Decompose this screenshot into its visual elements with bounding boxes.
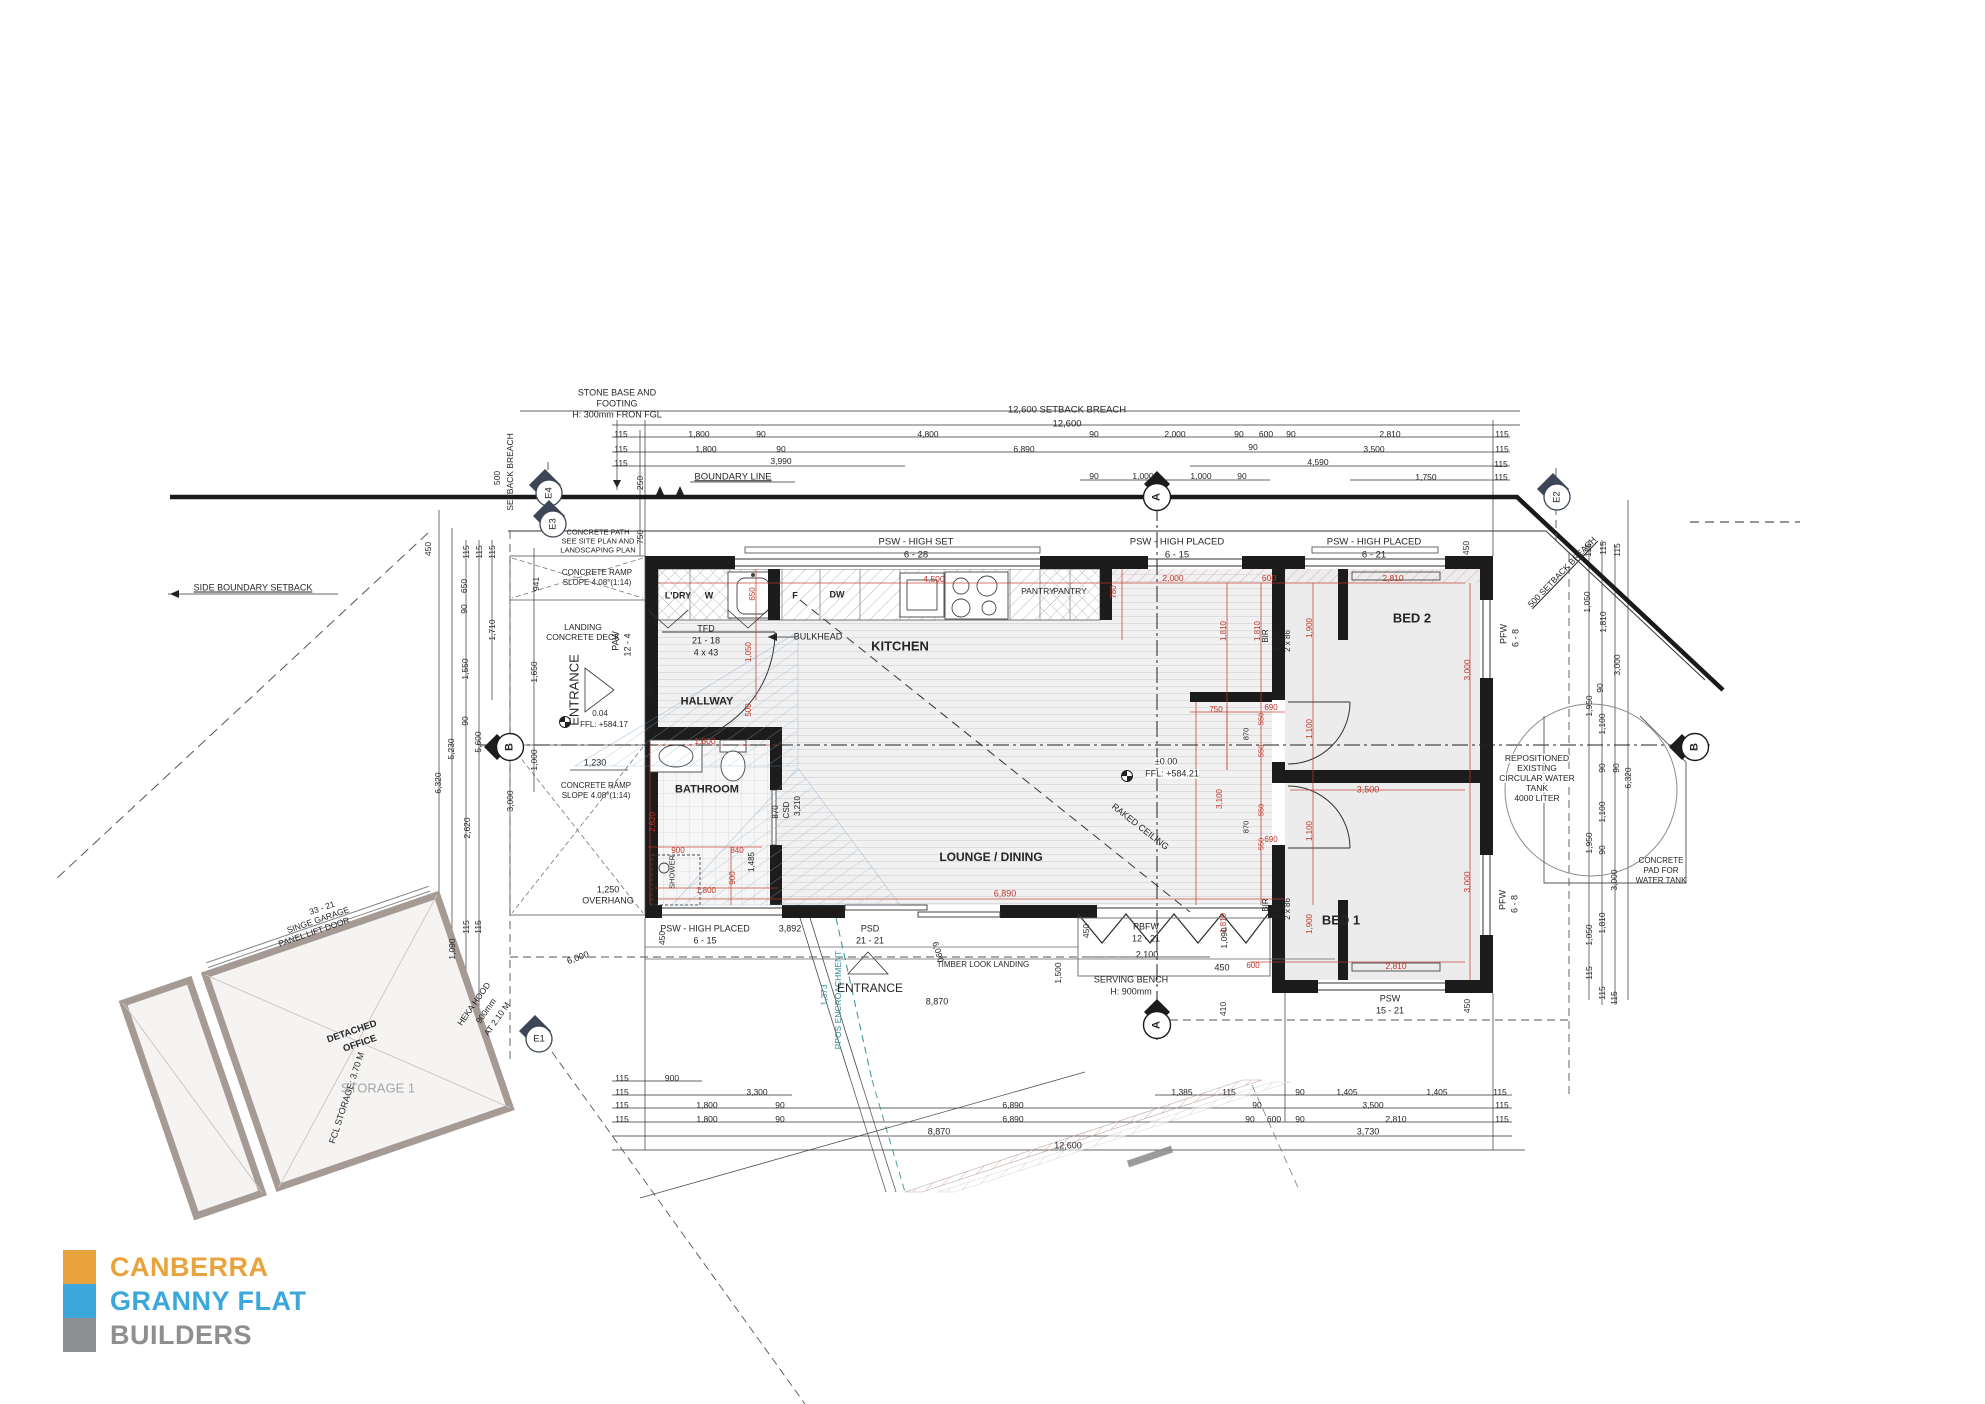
dim-label: 1,485: [748, 852, 756, 872]
window-label: PSW - HIGH PLACED: [1327, 537, 1422, 547]
company-logo: CANBERRA GRANNY FLAT BUILDERS: [63, 1250, 307, 1352]
dim-label: 690: [1264, 704, 1277, 712]
dim-label: 6 - 28: [904, 550, 928, 560]
dim-label: 3,100: [1216, 789, 1224, 809]
dim-label: 3,500: [1357, 786, 1380, 795]
room-label-bed-2: BED 2: [1393, 612, 1431, 625]
dim-label: 870: [1242, 728, 1250, 741]
dim-label: 1,950: [1585, 832, 1594, 853]
dim-label: 2,810: [1385, 962, 1406, 971]
elevation-marker-e3: E3: [548, 518, 558, 530]
dim-label: 5,600: [474, 731, 483, 752]
elevation-marker-e1: E1: [533, 1034, 545, 1044]
dim-label: 550: [1257, 804, 1265, 817]
dim-label: 840: [730, 847, 743, 855]
dim-label: TIMBER LOOK LANDING: [937, 961, 1029, 969]
section-marker-a: A: [1152, 1021, 1163, 1029]
dim-label: 941: [532, 577, 541, 591]
dim-label: 8,870: [926, 998, 949, 1007]
dim-label: 6,000: [566, 950, 590, 966]
dim-label: ±0.00: [1155, 758, 1177, 767]
dim-label: 1,000: [530, 749, 539, 770]
elevation-marker-e4: E4: [544, 487, 554, 499]
dim-label: 2,000: [1162, 574, 1183, 583]
dim-label: 12,600: [1052, 419, 1081, 429]
dim-label: 6,890: [1002, 1101, 1023, 1110]
dim-label: 115: [488, 545, 497, 559]
dim-label: 450: [1463, 999, 1472, 1013]
dim-label: 90: [1248, 443, 1257, 452]
dim-label: 12 - 4: [624, 633, 633, 656]
dim-label: 4,590: [1307, 458, 1328, 467]
dim-label: 12 - 21: [1132, 935, 1160, 944]
dim-label: 3,000: [1463, 871, 1472, 892]
dim-label: SEE SITE PLAN AND: [562, 537, 635, 545]
entrance-label: ENTRANCE: [837, 982, 903, 994]
dim-label: 1,710: [488, 619, 497, 640]
dim-label: 2,000: [1164, 430, 1185, 439]
dim-label: PSD: [861, 925, 880, 934]
dim-label: 1,050: [1585, 924, 1594, 945]
room-label-lounge-dining: LOUNGE / DINING: [939, 851, 1042, 863]
dim-label: 115: [1585, 966, 1594, 980]
dim-label: 115: [1495, 1115, 1509, 1124]
dim-label: BIR: [1262, 629, 1270, 642]
plan-annotations: STONE BASE ANDFOOTINGH: 300mm FRON FGL12…: [0, 0, 1985, 1404]
dim-label: 870: [1242, 821, 1250, 834]
dim-label: 90: [775, 1101, 784, 1110]
dim-label: CONCRETE RAMP: [562, 569, 632, 577]
dim-label: 3,000: [1463, 659, 1472, 680]
dim-label: EXISTING: [1517, 764, 1557, 773]
window-label: PSW - HIGH PLACED: [1130, 537, 1225, 547]
room-label-bathroom: BATHROOM: [675, 785, 739, 796]
boundary-line-label: BOUNDARY LINE: [694, 472, 771, 482]
dim-label: 90: [776, 445, 785, 454]
dim-label: 3,730: [1357, 1128, 1380, 1137]
dim-label: FCL STORAGE: 3.70 M: [328, 1051, 366, 1145]
dim-label: 90: [1237, 472, 1246, 481]
dim-label: 1,900: [1306, 618, 1314, 638]
dim-label: 1,100: [1598, 713, 1607, 734]
dim-label: TFD: [697, 625, 715, 634]
dim-label: 115: [475, 545, 484, 559]
dim-label: 450: [424, 542, 433, 556]
dim-label: 90: [1252, 1101, 1261, 1110]
dim-label: 1,000: [1190, 472, 1211, 481]
dim-label: 1,050: [1583, 591, 1592, 612]
dim-label: 115: [1598, 986, 1607, 1000]
dim-label: 2,810: [1382, 574, 1403, 583]
dim-label: 1,230: [584, 759, 607, 768]
dim-label: 3,000: [1613, 654, 1622, 675]
dim-label: CONCRETE PATH: [566, 528, 629, 536]
dim-label: 6 - 15: [693, 937, 716, 946]
elevation-marker-e2: E2: [1552, 491, 1562, 503]
dim-label: 6,890: [1013, 445, 1034, 454]
dim-label: 1,000: [1132, 472, 1153, 481]
dim-label: 900: [665, 1074, 679, 1083]
dim-label: 6,090: [931, 941, 945, 964]
dim-label: 3,990: [770, 457, 791, 466]
dim-label: 115: [1493, 1088, 1507, 1097]
dim-label: 550: [1257, 713, 1265, 726]
dim-label: 6 - 21: [1362, 550, 1386, 560]
dim-label: 115: [615, 1074, 629, 1083]
dim-label: 90: [1598, 763, 1607, 772]
dim-label: 90: [461, 716, 470, 725]
dim-label: 1,100: [1306, 821, 1314, 841]
entrance-label: ENTRANCE: [568, 654, 581, 726]
dim-label: 115: [1495, 445, 1509, 454]
dim-label: OVERHANG: [582, 897, 634, 906]
dim-label: 6 - 8: [1512, 629, 1521, 647]
dim-label: PANTRY: [1053, 587, 1087, 596]
dim-label: 0.04: [592, 710, 608, 718]
dim-label: 1,810: [1220, 621, 1228, 641]
dim-label: 90: [1612, 763, 1621, 772]
dim-label: 90: [1286, 430, 1295, 439]
dim-label: F: [792, 592, 798, 601]
logo-line-3: BUILDERS: [110, 1318, 307, 1352]
dim-label: 115: [615, 1101, 629, 1110]
window-label: PSW - HIGH PLACED: [660, 925, 750, 934]
dim-label: 8,870: [928, 1128, 951, 1137]
dim-label: 4000 LITER: [1514, 794, 1559, 803]
dim-label: 15 - 21: [1376, 1007, 1404, 1016]
dim-label: 2 x 86: [1284, 630, 1292, 652]
dim-label: 5,230: [447, 738, 456, 759]
dim-label: 1,373: [820, 984, 829, 1005]
dim-label: 1,750: [1415, 473, 1436, 482]
dim-label: 115: [1495, 430, 1509, 439]
dim-label: FFL: +584.17: [580, 721, 628, 729]
dim-label: 115: [614, 459, 628, 468]
dim-label: 1,550: [461, 658, 470, 679]
dim-label: CONCRETE RAMP: [561, 782, 631, 790]
dim-label: 1,720: [1273, 631, 1281, 651]
dim-label: LANDSCAPING PLAN: [560, 546, 635, 554]
section-marker-b: B: [1690, 743, 1701, 751]
dim-label: 6,320: [1624, 767, 1633, 788]
dim-label: 6,890: [994, 890, 1017, 899]
dim-label: 900: [729, 871, 737, 884]
dim-label: FOOTING: [597, 400, 638, 409]
dim-label: 90: [1295, 1088, 1304, 1097]
dim-label: FFL: +584.21: [1145, 770, 1199, 779]
dim-label: 6,320: [434, 772, 443, 793]
logo-line-1: CANBERRA: [110, 1250, 307, 1284]
dim-label: PAD FOR: [1644, 867, 1679, 875]
logo-square-gray: [63, 1318, 96, 1352]
dim-label: 870: [772, 805, 780, 818]
floor-plan-canvas: STONE BASE ANDFOOTINGH: 300mm FRON FGL12…: [0, 0, 1985, 1404]
dim-label: 1,100: [1598, 801, 1607, 822]
dim-label: 1,720: [1273, 899, 1281, 919]
dim-label: 1,800: [694, 737, 715, 746]
dim-label: 1,800: [695, 445, 716, 454]
dim-label: 12,600: [1054, 1142, 1082, 1151]
dim-label: PFW: [1500, 624, 1509, 644]
dim-label: 3,300: [746, 1088, 767, 1097]
dim-label: 1,810: [1599, 611, 1608, 632]
dim-label: 90: [775, 1115, 784, 1124]
dim-label: 115: [614, 445, 628, 454]
dim-label: 1,405: [1426, 1088, 1447, 1097]
dim-label: 115: [462, 920, 471, 934]
dim-label: PFW: [1499, 890, 1508, 910]
dim-label: 90: [1234, 430, 1243, 439]
logo-line-2: GRANNY FLAT: [110, 1284, 307, 1318]
dim-label: 1,800: [696, 1101, 717, 1110]
dim-label: PAW: [612, 631, 621, 651]
dim-label: 600: [1259, 430, 1273, 439]
dim-label: 750: [1209, 706, 1222, 714]
dim-label: 1,800: [696, 1115, 717, 1124]
window-label: PSW - HIGH SET: [879, 537, 954, 547]
dim-label: PSW: [1380, 995, 1401, 1004]
dim-label: CSD: [783, 802, 791, 819]
dim-label: 2,620: [649, 812, 657, 832]
dim-label: 6 - 8: [1511, 895, 1520, 913]
dim-label: 1,800: [696, 887, 716, 895]
dim-label: 115: [1495, 1101, 1509, 1110]
logo-square-orange: [63, 1250, 96, 1284]
dim-label: 115: [462, 545, 471, 559]
dim-label: 1,050: [745, 642, 753, 662]
dim-label: 6,890: [1002, 1115, 1023, 1124]
dim-label: 3,210: [794, 796, 802, 816]
dim-label: 90: [1245, 1115, 1254, 1124]
dim-label: 115: [1222, 1088, 1236, 1097]
dim-label: 2,100: [1136, 951, 1159, 960]
dim-label: 1,090: [448, 938, 457, 959]
dim-label: PPOS ENCROACHMENT: [834, 951, 843, 1050]
dim-label: 500: [745, 703, 753, 716]
dim-label: 90: [1295, 1115, 1304, 1124]
dim-label: SERVING BENCH: [1094, 976, 1168, 985]
dim-label: TANK: [1526, 784, 1548, 793]
dim-label: 115: [474, 920, 483, 934]
dim-label: 90: [756, 430, 765, 439]
dim-label: BIR: [1262, 898, 1270, 911]
section-marker-a: A: [1152, 493, 1163, 501]
dim-label: 750: [636, 530, 645, 544]
dim-label: 90: [1089, 472, 1098, 481]
dim-label: 2,810: [1379, 430, 1400, 439]
dim-label: 650: [460, 579, 469, 593]
room-label-bed-1: BED 1: [1322, 914, 1360, 927]
dim-label: DW: [830, 591, 845, 600]
section-marker-b: B: [505, 743, 516, 751]
dim-label: 600: [1262, 574, 1276, 583]
dim-label: 1,100: [1306, 719, 1314, 739]
dim-label: 115: [1494, 460, 1508, 469]
dim-label: 1,405: [1336, 1088, 1357, 1097]
dim-label: 1,500: [1054, 962, 1063, 983]
dim-label: LANDING: [564, 623, 602, 632]
dim-label: 12,600 SETBACK BREACH: [1008, 405, 1126, 415]
dim-label: STORAGE 1: [341, 1082, 415, 1095]
dim-label: CONCRETE DECK: [546, 633, 620, 642]
dim-label: 21 - 21: [856, 937, 884, 946]
dim-label: 90: [1596, 683, 1605, 692]
dim-label: 115: [615, 1115, 629, 1124]
dim-label: 450: [1462, 541, 1471, 555]
dim-label: 780: [1110, 585, 1118, 598]
dim-label: 3,500: [1363, 445, 1384, 454]
dim-label: SHOWER: [668, 855, 676, 889]
dim-label: 450: [1214, 964, 1229, 973]
dim-label: RAKED CEILING: [1110, 802, 1170, 852]
dim-label: 3,000: [1610, 869, 1619, 890]
dim-label: H: 300mm FRON FGL: [572, 411, 662, 420]
dim-label: W: [705, 592, 714, 601]
dim-label: 1,800: [688, 430, 709, 439]
dim-label: 90: [1598, 845, 1607, 854]
dim-label: 115: [614, 430, 628, 439]
dim-label: CONCRETE: [1639, 857, 1684, 865]
dim-label: 115: [1613, 543, 1622, 557]
dim-label: SETBACK BREACH: [506, 433, 515, 510]
dim-label: SLOPE 4.08°(1:14): [562, 792, 631, 800]
dim-label: PBFW: [1133, 923, 1159, 932]
dim-label: 115: [1584, 543, 1593, 557]
dim-label: PANTRY: [1021, 587, 1055, 596]
dim-label: 1,385: [1171, 1088, 1192, 1097]
dim-label: 2,620: [463, 817, 472, 838]
dim-label: 115: [1599, 541, 1608, 555]
dim-label: 90: [460, 604, 469, 613]
dim-label: 900: [671, 847, 684, 855]
dim-label: 1,950: [1585, 695, 1594, 716]
dim-label: 3,000: [506, 790, 515, 811]
dim-label: 21 - 18: [692, 637, 720, 646]
logo-squares-icon: [63, 1250, 96, 1352]
dim-label: 6 - 15: [1165, 550, 1189, 560]
dim-label: 450: [1082, 924, 1091, 938]
dim-label: 650: [749, 587, 757, 600]
dim-label: 690: [1264, 836, 1277, 844]
dim-label: 90: [1089, 430, 1098, 439]
dim-label: 3,500: [1362, 1101, 1383, 1110]
dim-label: 1,650: [530, 661, 539, 682]
dim-label: CIRCULAR WATER: [1499, 774, 1575, 783]
dim-label: 2 x 86: [1284, 898, 1292, 920]
dim-label: 1,090: [1220, 927, 1229, 948]
dim-label: 250: [636, 476, 645, 490]
dim-label: 4,500: [923, 575, 944, 584]
dim-label: 600: [1246, 962, 1259, 970]
dim-label: 920: [646, 683, 655, 697]
dim-label: 1,250: [597, 886, 620, 895]
dim-label: 1,900: [1306, 914, 1314, 934]
dim-label: 115: [1610, 991, 1619, 1005]
room-label-laundry: L'DRY: [665, 592, 691, 601]
dim-label: WATER TANK: [1636, 877, 1687, 885]
logo-square-blue: [63, 1284, 96, 1318]
dim-label: 115: [1494, 473, 1508, 482]
dim-label: BULKHEAD: [794, 633, 843, 642]
dim-label: SLOPE 4.08°(1:14): [563, 579, 632, 587]
room-label-hallway: HALLWAY: [681, 697, 734, 708]
dim-label: 450: [658, 931, 667, 945]
dim-label: H: 900mm: [1110, 988, 1152, 997]
dim-label: 1,810: [1598, 912, 1607, 933]
dim-label: 3,892: [779, 925, 802, 934]
dim-label: 4 x 43: [694, 649, 719, 658]
room-label-kitchen: KITCHEN: [871, 640, 929, 653]
dim-label: 500: [493, 471, 502, 485]
dim-label: 2,810: [1385, 1115, 1406, 1124]
dim-label: SIDE BOUNDARY SETBACK: [194, 584, 313, 593]
dim-label: 600: [1267, 1115, 1281, 1124]
dim-label: STONE BASE AND: [578, 389, 656, 398]
dim-label: 550: [1257, 745, 1265, 758]
dim-label: 115: [615, 1088, 629, 1097]
dim-label: 410: [1219, 1002, 1228, 1016]
dim-label: 4,800: [917, 430, 938, 439]
dim-label: REPOSITIONED: [1505, 754, 1569, 763]
